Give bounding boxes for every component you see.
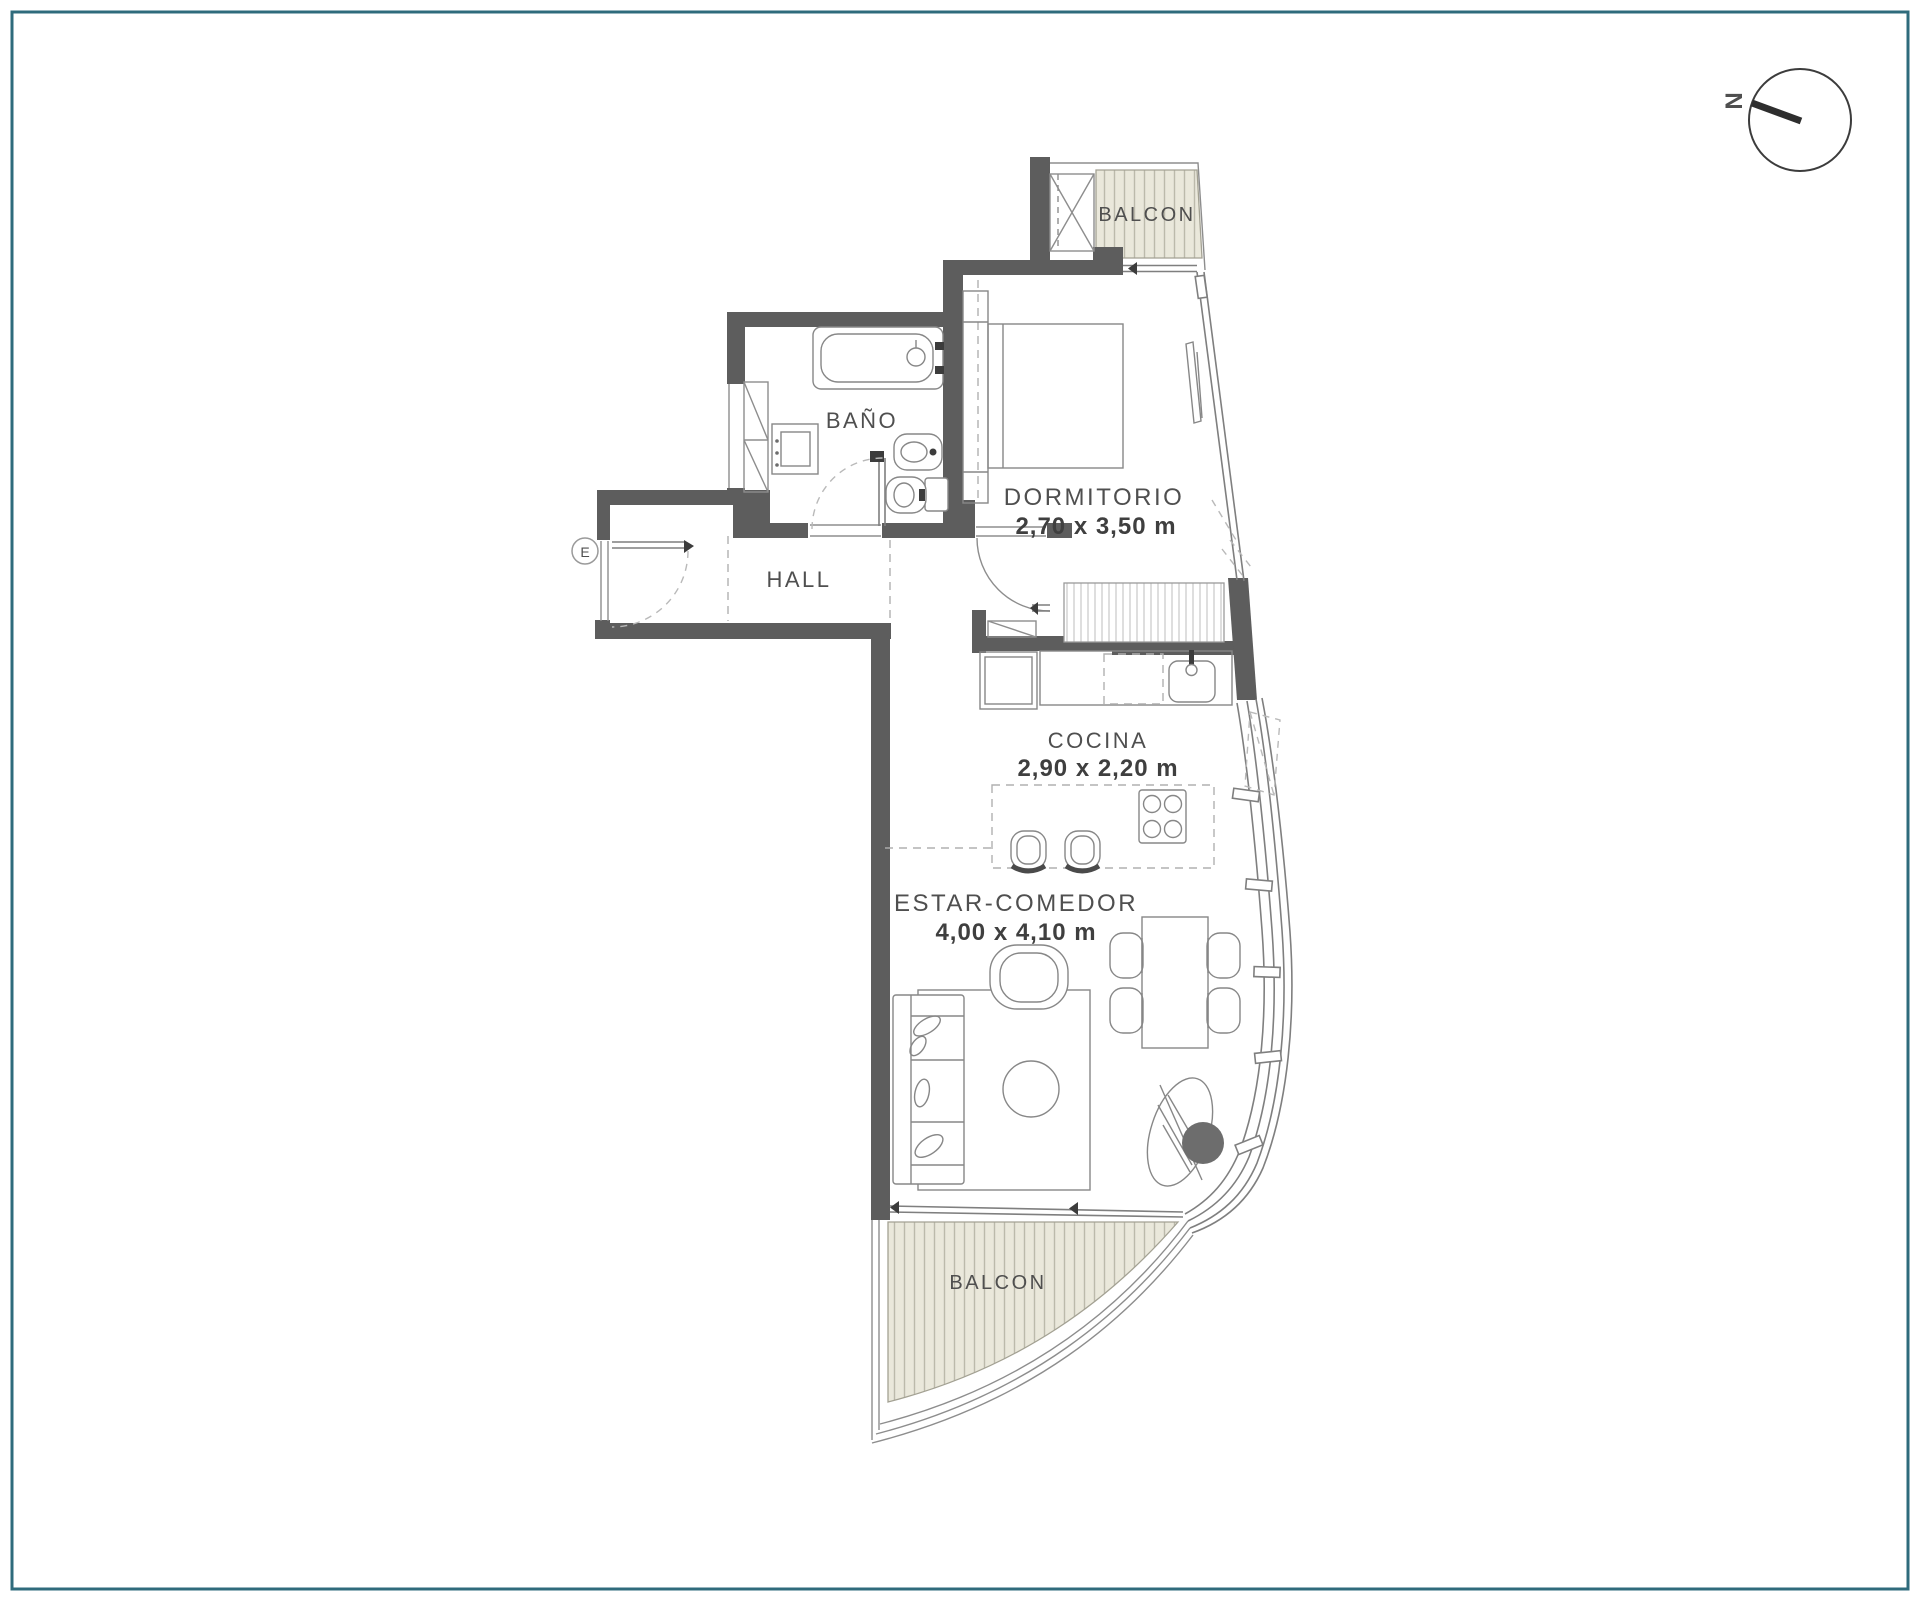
bedroom-label: DORMITORIO: [1004, 484, 1185, 511]
compass-needle: [1752, 103, 1801, 121]
compass: N: [1721, 69, 1851, 171]
floor-plan-svg: E N BALCON DORMITORIO 2,70 x 3,50 m BAÑO…: [0, 0, 1920, 1601]
dishwasher: [1104, 654, 1163, 704]
fridge: [980, 652, 1037, 709]
shaft-x: [1050, 174, 1094, 251]
dining-chair: [1110, 933, 1143, 978]
living-dims: 4,00 x 4,10 m: [935, 919, 1096, 946]
fridge-inner: [985, 657, 1032, 704]
bedroom-furniture: [963, 291, 1224, 642]
balcony-bottom-label: BALCON: [949, 1272, 1046, 1294]
balcony-top-label: BALCON: [1098, 204, 1195, 226]
bed-headboard: [963, 291, 988, 503]
dining-chair: [1207, 933, 1240, 978]
entrance-label: E: [580, 544, 589, 560]
bidet: [894, 434, 942, 470]
floor-plan-page: E N BALCON DORMITORIO 2,70 x 3,50 m BAÑO…: [0, 0, 1920, 1601]
kitchen-counter: [1040, 651, 1232, 705]
bathroom-door: [810, 451, 885, 536]
bedroom-dims: 2,70 x 3,50 m: [1015, 513, 1176, 540]
kitchen-label: COCINA: [1048, 728, 1149, 753]
armchair: [990, 945, 1068, 1009]
window-arrow-top: [1128, 262, 1137, 275]
wardrobe: [1064, 583, 1224, 642]
toilet: [886, 477, 948, 513]
north-label: N: [1721, 92, 1748, 109]
bedroom-door: [976, 527, 1050, 615]
side-table-dark: [1182, 1122, 1224, 1164]
bathroom-duct: [729, 382, 768, 492]
dining-chair: [1207, 988, 1240, 1033]
bar-stool-2: [1065, 831, 1100, 871]
balcony-bottom-deck: [872, 1220, 1193, 1443]
window-curtain-bar: [1186, 342, 1202, 423]
sofa: [893, 995, 964, 1184]
window-arrow-bottom: [1069, 1202, 1078, 1215]
kitchen-sink: [1169, 650, 1215, 702]
bathroom-vanity: [772, 424, 818, 474]
entrance-marker: E: [572, 538, 598, 564]
kitchen-nook-cabinet: [988, 621, 1036, 637]
bar-stool-1: [1011, 831, 1046, 871]
bathtub: [813, 327, 944, 389]
cooktop: [1139, 790, 1186, 843]
living-furniture: [893, 917, 1240, 1194]
entry-door: [601, 540, 694, 627]
coffee-table: [1003, 1061, 1059, 1117]
living-label: ESTAR-COMEDOR: [894, 890, 1138, 917]
dining-table: [1142, 917, 1208, 1048]
hall-label: HALL: [766, 567, 831, 592]
bed: [988, 324, 1123, 468]
bathroom-label: BAÑO: [826, 408, 898, 433]
kitchen-dims: 2,90 x 2,20 m: [1017, 755, 1178, 782]
dining-chair: [1110, 988, 1143, 1033]
